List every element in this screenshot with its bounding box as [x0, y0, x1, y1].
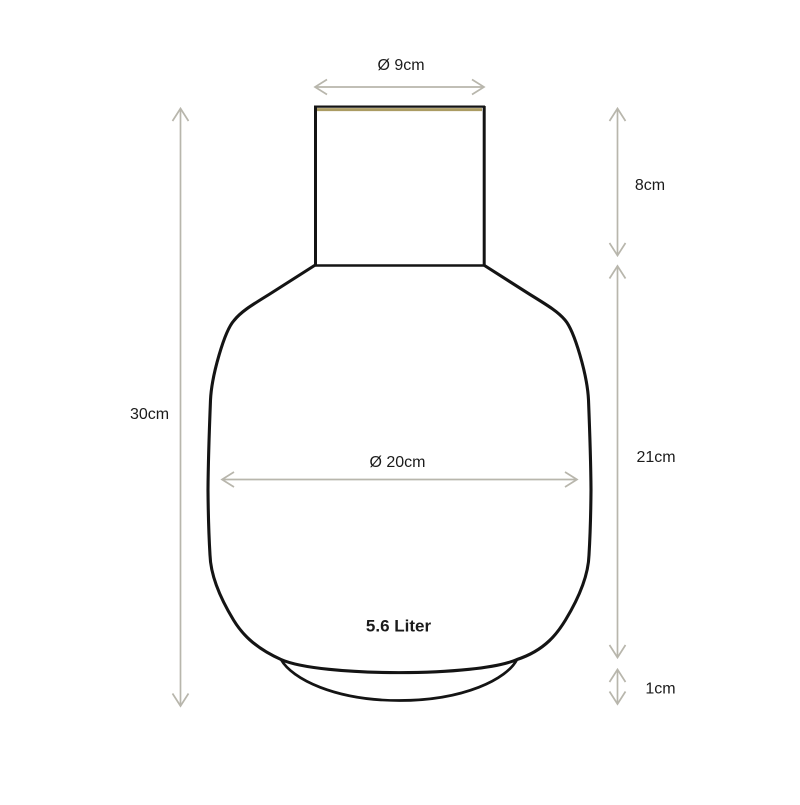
- svg-text:8cm: 8cm: [635, 177, 665, 194]
- svg-text:21cm: 21cm: [636, 449, 675, 466]
- svg-text:5.6 Liter: 5.6 Liter: [366, 617, 432, 636]
- svg-text:Ø 20cm: Ø 20cm: [369, 454, 425, 471]
- svg-text:1cm: 1cm: [645, 681, 675, 698]
- svg-text:Ø 9cm: Ø 9cm: [377, 57, 424, 74]
- svg-text:30cm: 30cm: [130, 406, 169, 423]
